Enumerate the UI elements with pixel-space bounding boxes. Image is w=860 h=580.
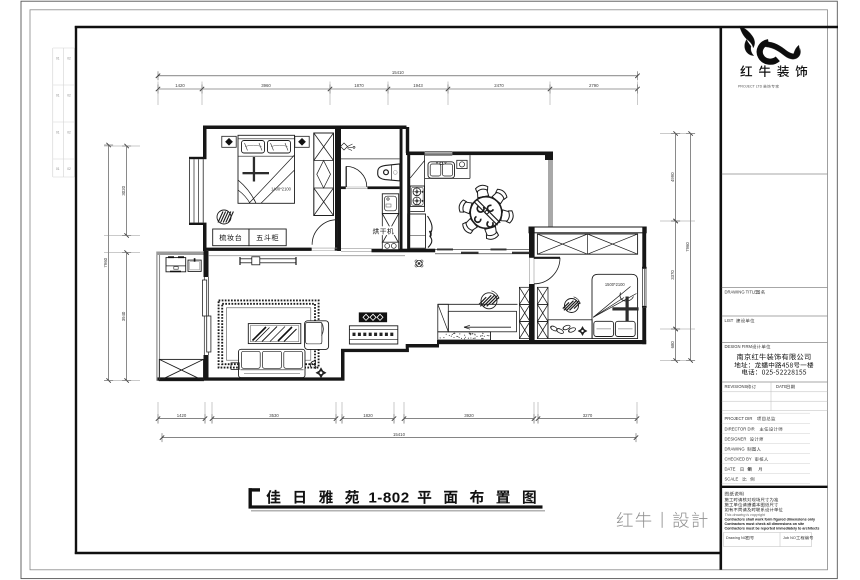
svg-text:01: 01 [56, 57, 60, 61]
svg-text:PROJECT DIR: PROJECT DIR [725, 416, 753, 421]
svg-text:3020: 3020 [121, 185, 126, 195]
svg-text:1820: 1820 [363, 413, 373, 418]
svg-text:3940: 3940 [121, 311, 126, 321]
svg-text:01: 01 [56, 131, 60, 135]
svg-text:DATE: DATE [776, 384, 787, 389]
svg-text:This drawing is copyright: This drawing is copyright [725, 513, 767, 517]
svg-text:Drawing NO: Drawing NO [726, 536, 747, 540]
svg-text:Contractors must check all dim: Contractors must check all dimensions on… [725, 522, 805, 526]
svg-text:DESIGNER: DESIGNER [725, 437, 747, 442]
svg-text:02: 02 [67, 57, 71, 61]
svg-text:02: 02 [67, 167, 71, 171]
svg-text:LIST: LIST [725, 318, 734, 323]
svg-text:3920: 3920 [464, 413, 474, 418]
svg-text:DATE: DATE [725, 467, 736, 472]
svg-text:REVISIONS: REVISIONS [725, 384, 748, 389]
svg-text:1420: 1420 [177, 413, 187, 418]
svg-text:15410: 15410 [393, 432, 406, 437]
svg-text:7960: 7960 [103, 257, 108, 267]
svg-text:1870: 1870 [354, 83, 364, 88]
svg-text:2790: 2790 [589, 83, 599, 88]
svg-text:1943: 1943 [413, 83, 423, 88]
svg-text:1420: 1420 [175, 83, 185, 88]
svg-text:CHECKED BY: CHECKED BY [725, 457, 752, 462]
svg-text:1500*2100: 1500*2100 [605, 282, 626, 287]
svg-text:DIRECTOR DIR: DIRECTOR DIR [725, 427, 755, 432]
svg-text:3270: 3270 [583, 413, 593, 418]
svg-text:PROJECT LTD: PROJECT LTD [738, 85, 763, 89]
svg-text:SCALE: SCALE [725, 477, 739, 482]
svg-text:680: 680 [670, 341, 675, 349]
svg-text:01: 01 [56, 94, 60, 98]
svg-text:1-802: 1-802 [368, 490, 409, 507]
svg-text:Job NO: Job NO [783, 536, 796, 540]
svg-text:7960: 7960 [685, 242, 690, 252]
svg-text:2470: 2470 [494, 83, 504, 88]
svg-text:DRAWING: DRAWING [725, 447, 745, 452]
svg-text:3370: 3370 [670, 270, 675, 280]
svg-text:Contractors must be reported i: Contractors must be reported immediately… [725, 526, 820, 530]
svg-text:02: 02 [67, 131, 71, 135]
svg-text:3960: 3960 [261, 83, 271, 88]
svg-text:4990: 4990 [670, 172, 675, 182]
svg-text:DRAWING TITLE: DRAWING TITLE [725, 290, 758, 295]
svg-text:3530: 3530 [269, 413, 279, 418]
svg-text:15410: 15410 [392, 70, 405, 75]
svg-text:01: 01 [56, 167, 60, 171]
svg-text:DESIGN FIRM: DESIGN FIRM [725, 344, 753, 349]
svg-text:02: 02 [67, 94, 71, 98]
svg-text:Contractors shall work form fi: Contractors shall work form figured dime… [725, 517, 815, 521]
svg-text:1400*2100: 1400*2100 [271, 187, 292, 192]
